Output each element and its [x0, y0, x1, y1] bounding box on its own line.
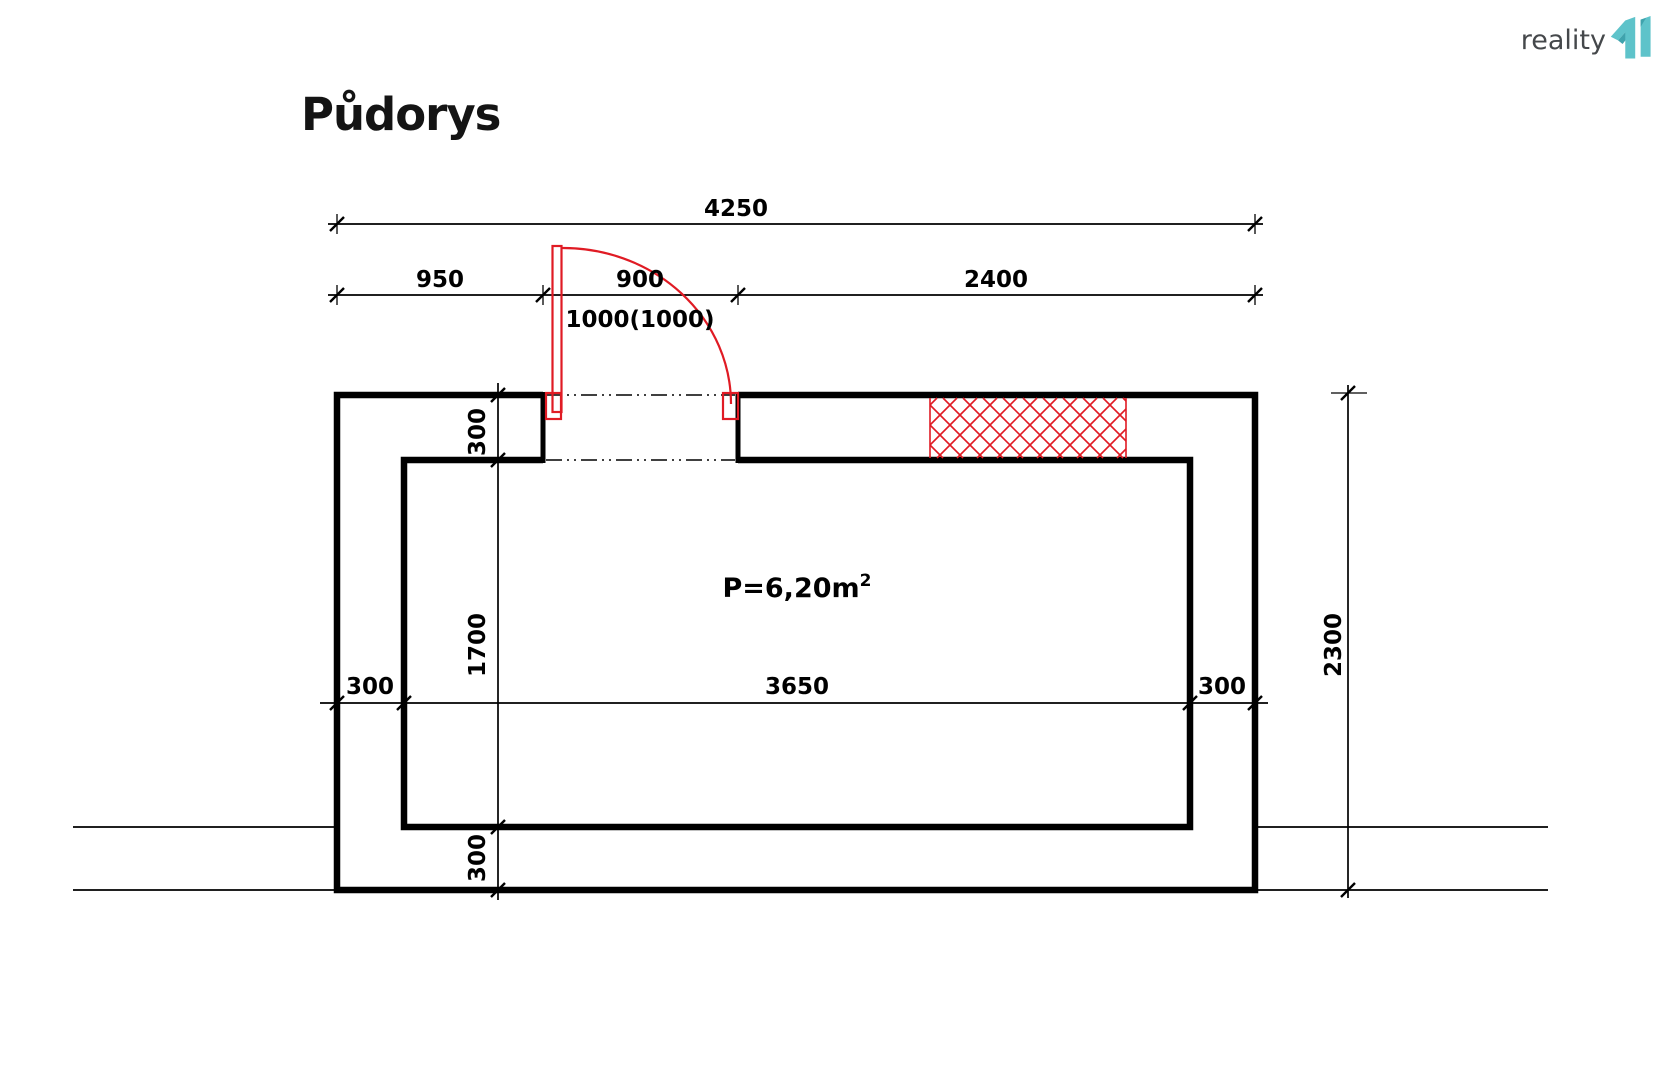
inner-wall — [404, 460, 1190, 827]
dim-label-wall-bottom: 300 — [465, 834, 491, 882]
window-hatch — [930, 398, 1126, 458]
dim-label-door-opening: 900 — [616, 267, 664, 293]
dim-label-room-height: 1700 — [465, 613, 491, 677]
dimension-lines — [320, 224, 1367, 900]
dim-label-right-segment: 2400 — [964, 267, 1028, 293]
dim-label-total-height: 2300 — [1321, 613, 1347, 677]
area-label-superscript: 2 — [860, 571, 872, 591]
dimension-ticks — [330, 214, 1355, 897]
dim-label-room-width: 3650 — [765, 674, 829, 700]
dim-label-left-segment: 950 — [416, 267, 464, 293]
dim-label-wall-top: 300 — [465, 408, 491, 456]
floorplan-page: Půdorys reality — [0, 0, 1671, 1080]
area-label-main: P=6,20m — [722, 573, 859, 604]
dim-label-door-note: 1000(1000) — [565, 307, 714, 333]
dim-label-total-width: 4250 — [704, 196, 768, 222]
door-leaf — [553, 246, 562, 412]
dim-label-wall-right: 300 — [1198, 674, 1246, 700]
area-label: P=6,20m2 — [722, 571, 871, 604]
dim-label-wall-left: 300 — [346, 674, 394, 700]
ground-lines — [73, 827, 1548, 890]
floorplan-drawing: 4250 950 900 2400 1000(1000) 300 1700 30… — [0, 0, 1671, 1080]
